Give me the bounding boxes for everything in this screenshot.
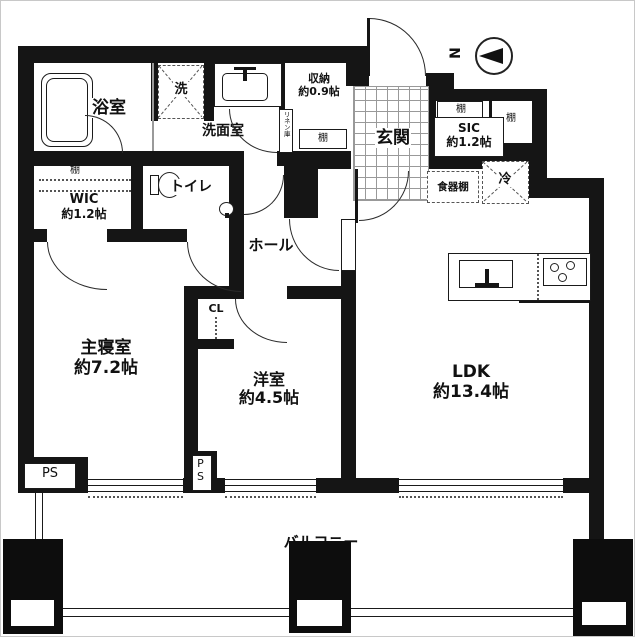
floor-plan: 玄関 N 浴室 洗 洗面室 収納約0.9帖 リネン庫 棚 棚 棚 SIC約1.2… [0, 0, 635, 637]
powder-faucet-stem-icon [243, 67, 247, 81]
wall-cl-bottom [198, 339, 234, 349]
kitchen-faucet-icon [475, 283, 499, 287]
powder-door-arc [229, 109, 277, 153]
wall-step-entry-left [346, 46, 369, 86]
hall-ldk-door-pocket [341, 219, 356, 271]
western-window-sill [225, 496, 316, 498]
entry-inner-door-leaf [355, 169, 358, 223]
entrance-door-arc [369, 18, 426, 76]
master-window [88, 479, 183, 492]
master-door-arc [187, 242, 241, 292]
pillar-bottom-left-notch [10, 599, 55, 627]
wall-wic-toilet-divider [131, 164, 143, 229]
ps-left-label: PS [24, 467, 76, 482]
washer-label: 洗 [166, 83, 196, 98]
stove-burner-2 [566, 261, 575, 270]
compass-needle-icon [479, 48, 503, 64]
wall-core-cap [284, 151, 351, 169]
storage-label: 収納約0.9帖 [289, 73, 349, 98]
wall-top [18, 46, 348, 63]
stove-burner-1 [550, 263, 559, 272]
bath-powder-divider-line [152, 63, 154, 151]
shelf-label-core: 棚 [311, 133, 335, 145]
wall-top-right [426, 89, 547, 101]
western-window [225, 479, 316, 492]
shelf-label-wic: 棚 [63, 165, 87, 177]
master-label: 主寝室約7.2帖 [46, 339, 166, 378]
cupboard-label: 食器棚 [427, 181, 479, 193]
entry-inner-door-arc [359, 171, 409, 221]
wall-powder-bottom-jamb [277, 151, 284, 166]
wall-bottom-c [316, 478, 399, 493]
kitchen-stove [543, 258, 587, 286]
western-door-arc [235, 299, 287, 343]
wall-master-top-b [107, 229, 187, 242]
wall-washer-right [204, 63, 214, 121]
toilet-door-arc [244, 175, 284, 215]
cl-label: CL [200, 303, 232, 316]
fridge-label: 冷 [490, 173, 520, 188]
kitchen-counter-divider [537, 254, 539, 300]
entrance-door-leaf [367, 18, 370, 76]
ldk-window-sill [399, 496, 563, 498]
wall-fridge-top [529, 178, 604, 198]
wall-powder-bottom [18, 151, 229, 166]
wall-left [18, 46, 34, 478]
linen-label: リネン庫 [283, 111, 290, 137]
master-window-sill [88, 496, 183, 498]
pillar-bottom-middle-notch [296, 599, 343, 627]
ldk-label: LDK約13.4帖 [411, 363, 531, 402]
wic-door-arc [47, 242, 107, 290]
western-label: 洋室約4.5帖 [209, 371, 329, 408]
linen-cabinet: リネン庫 [279, 109, 293, 153]
pillar-bottom-right-notch [581, 601, 627, 626]
ps-middle-label: PS [195, 457, 206, 483]
toilet-basin-spout [225, 213, 229, 218]
balcony-left-rail [35, 493, 43, 539]
stove-burner-3 [558, 273, 567, 282]
ldk-window [399, 479, 563, 492]
entry-label: 玄関 [363, 129, 423, 149]
compass-north-label: N [448, 47, 464, 59]
wic-label: WIC約1.2帖 [44, 193, 124, 223]
balcony-rail-right [351, 608, 573, 617]
sic-label: SIC約1.2帖 [436, 122, 502, 150]
hall-ldk-door-arc [289, 219, 339, 271]
wall-master-western-divider [184, 286, 198, 478]
wall-master-top-a [18, 229, 47, 242]
wall-bottom-d [563, 478, 604, 493]
wic-shelf-lines [39, 179, 131, 192]
bath-door-arc [85, 115, 123, 153]
shelf-label-sic: 棚 [449, 104, 473, 116]
wall-western-ldk-divider [341, 271, 356, 478]
balcony-rail-left [63, 608, 289, 617]
toilet-label: トイレ [159, 179, 223, 195]
cl-hanger-line [215, 317, 217, 339]
